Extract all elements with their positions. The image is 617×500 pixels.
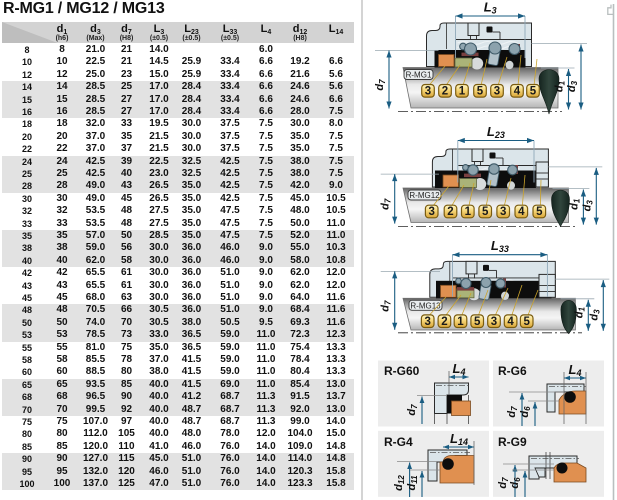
svg-text:R-G9: R-G9 xyxy=(498,435,527,449)
svg-text:5: 5 xyxy=(530,86,537,98)
svg-text:R-MG12: R-MG12 xyxy=(409,191,440,200)
svg-text:5: 5 xyxy=(474,316,481,328)
svg-text:d3: d3 xyxy=(588,309,601,321)
svg-text:4: 4 xyxy=(514,86,521,98)
svg-text:2: 2 xyxy=(447,206,453,218)
svg-text:L3: L3 xyxy=(484,0,497,16)
svg-text:R-MG1: R-MG1 xyxy=(406,71,432,80)
svg-text:4: 4 xyxy=(507,316,514,328)
svg-text:L33: L33 xyxy=(491,238,509,254)
svg-text:1: 1 xyxy=(465,206,472,218)
svg-text:3: 3 xyxy=(424,316,430,328)
svg-text:R-MG13: R-MG13 xyxy=(410,301,441,310)
svg-text:2: 2 xyxy=(442,86,448,98)
svg-text:3: 3 xyxy=(500,206,506,218)
svg-text:3: 3 xyxy=(425,86,431,98)
svg-text:R-G60: R-G60 xyxy=(384,364,420,378)
svg-text:d7: d7 xyxy=(374,79,387,91)
svg-text:1: 1 xyxy=(457,316,464,328)
svg-text:1: 1 xyxy=(459,86,466,98)
svg-text:5: 5 xyxy=(523,316,530,328)
svg-text:3: 3 xyxy=(491,316,497,328)
svg-text:3: 3 xyxy=(494,86,500,98)
svg-text:2: 2 xyxy=(441,316,447,328)
svg-text:d1: d1 xyxy=(568,198,581,210)
svg-text:5: 5 xyxy=(536,206,543,218)
svg-text:L23: L23 xyxy=(487,124,505,140)
svg-text:3: 3 xyxy=(428,206,434,218)
svg-text:R-G4: R-G4 xyxy=(384,435,413,449)
svg-text:5: 5 xyxy=(477,86,484,98)
svg-text:d7: d7 xyxy=(380,198,393,210)
svg-text:5: 5 xyxy=(482,206,489,218)
svg-text:R-G6: R-G6 xyxy=(498,364,527,378)
svg-text:d7: d7 xyxy=(380,300,393,312)
svg-text:4: 4 xyxy=(518,206,525,218)
